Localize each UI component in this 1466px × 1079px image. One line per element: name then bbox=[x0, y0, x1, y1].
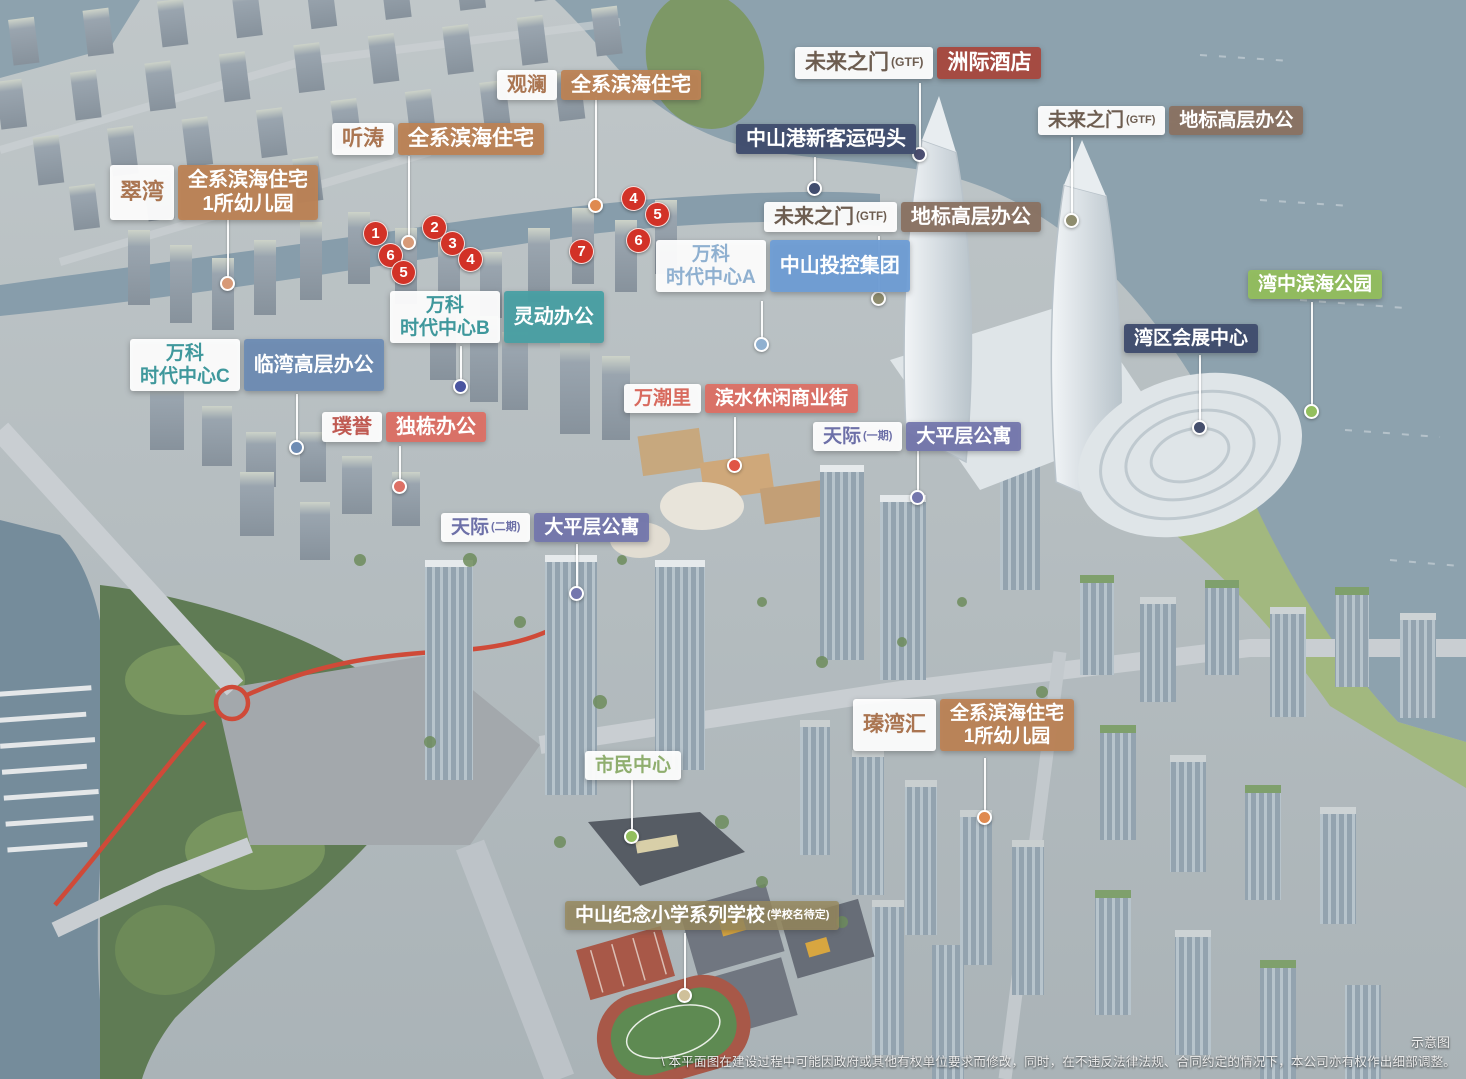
map-marker bbox=[677, 988, 692, 1003]
label-chip-desc: 全系滨海住宅 bbox=[561, 70, 701, 100]
label-chip-desc: 灵动办公 bbox=[504, 291, 604, 343]
leader-line bbox=[734, 417, 736, 460]
leader-line bbox=[684, 933, 686, 990]
map-marker bbox=[871, 291, 886, 306]
label-tianji-phase1: 天际(一期) 大平层公寓 bbox=[813, 422, 1021, 451]
label-chip-name: 未来之门(GTF) bbox=[1038, 106, 1165, 135]
leader-line bbox=[1071, 137, 1073, 215]
label-wanchaoli: 万潮里 滨水休闲商业街 bbox=[624, 384, 858, 413]
disclaimer-text: \ 本平面图在建设过程中可能因政府或其他有权单位要求而修改，同时，在不违反法律法… bbox=[661, 1051, 1456, 1070]
label-chip-name: 听涛 bbox=[332, 123, 394, 155]
map-marker bbox=[392, 479, 407, 494]
label-chip-name: 翠湾 bbox=[110, 165, 174, 220]
schematic-note: 示意图 bbox=[1411, 1032, 1450, 1051]
label-tingtao: 听涛 全系滨海住宅 bbox=[332, 123, 544, 155]
map-marker bbox=[1064, 213, 1079, 228]
label-vanke-center-c: 万科时代中心C 临湾高层办公 bbox=[130, 339, 384, 391]
label-chip-name: 未来之门(GTF) bbox=[795, 47, 933, 79]
label-cuiwan: 翠湾 全系滨海住宅1所幼儿园 bbox=[110, 165, 318, 220]
map-marker bbox=[727, 458, 742, 473]
label-zhenwanhui: 瑧湾汇 全系滨海住宅1所幼儿园 bbox=[853, 699, 1074, 751]
label-chip-name: 天际(二期) bbox=[441, 513, 530, 542]
label-chip-desc: 全系滨海住宅1所幼儿园 bbox=[178, 165, 318, 220]
label-chip-desc: 全系滨海住宅1所幼儿园 bbox=[940, 699, 1074, 751]
leader-line bbox=[984, 758, 986, 812]
leader-line bbox=[917, 451, 919, 492]
label-chip-desc: 全系滨海住宅 bbox=[398, 123, 544, 155]
leader-line bbox=[1199, 355, 1201, 422]
leader-line bbox=[296, 394, 298, 442]
leader-line bbox=[460, 346, 462, 381]
leader-line bbox=[408, 156, 410, 237]
label-chip-desc: 地标高层办公 bbox=[1169, 106, 1303, 135]
label-chip-desc: 洲际酒店 bbox=[937, 47, 1041, 79]
label-tianji-phase2: 天际(二期) 大平层公寓 bbox=[441, 513, 649, 542]
unit-badge: 5 bbox=[645, 202, 670, 227]
label-school: 中山纪念小学系列学校(学校名待定) bbox=[565, 901, 839, 930]
label-guanlan: 观澜 全系滨海住宅 bbox=[497, 70, 701, 100]
label-expo-center: 湾区会展中心 bbox=[1124, 324, 1258, 353]
unit-badge: 7 bbox=[569, 239, 594, 264]
unit-badge: 4 bbox=[621, 186, 646, 211]
label-gtf-mid: 未来之门(GTF) 地标高层办公 bbox=[764, 202, 1041, 232]
label-chip-desc: 大平层公寓 bbox=[906, 422, 1021, 451]
label-gtf-hotel: 未来之门(GTF) 洲际酒店 bbox=[795, 47, 1041, 79]
label-chip-desc: 湾中滨海公园 bbox=[1248, 270, 1382, 299]
label-bay-park: 湾中滨海公园 bbox=[1248, 270, 1382, 299]
leader-line bbox=[761, 301, 763, 339]
leader-line bbox=[399, 446, 401, 481]
leader-line bbox=[576, 544, 578, 588]
map-marker bbox=[289, 440, 304, 455]
label-chip-desc: 中山投控集团 bbox=[770, 240, 910, 292]
label-civic-center: 市民中心 bbox=[585, 751, 681, 780]
label-vanke-center-b: 万科时代中心B 灵动办公 bbox=[390, 291, 604, 343]
masterplan-aerial-image: 1 6 5 2 3 4 7 4 5 6 翠湾 全系滨海住宅1所幼儿园 听涛 全系… bbox=[0, 0, 1466, 1079]
label-chip-desc: 中山纪念小学系列学校(学校名待定) bbox=[565, 901, 839, 930]
leader-line bbox=[1311, 302, 1313, 406]
leader-line bbox=[919, 83, 921, 149]
label-chip-desc: 大平层公寓 bbox=[534, 513, 649, 542]
map-marker bbox=[453, 379, 468, 394]
unit-badge: 4 bbox=[458, 247, 483, 272]
label-chip-name: 观澜 bbox=[497, 70, 557, 100]
unit-badge: 5 bbox=[391, 260, 416, 285]
label-chip-desc: 临湾高层办公 bbox=[244, 339, 384, 391]
label-chip-name: 万科时代中心B bbox=[390, 291, 500, 343]
water-left-marina bbox=[0, 520, 108, 1079]
map-marker bbox=[754, 337, 769, 352]
label-chip-name: 璞誉 bbox=[322, 412, 382, 442]
map-marker bbox=[1192, 420, 1207, 435]
map-marker bbox=[220, 276, 235, 291]
map-marker bbox=[588, 198, 603, 213]
label-port-terminal: 中山港新客运码头 bbox=[736, 124, 916, 154]
map-marker bbox=[1304, 404, 1319, 419]
label-vanke-center-a: 万科时代中心A 中山投控集团 bbox=[656, 240, 910, 292]
unit-badge: 1 bbox=[363, 221, 388, 246]
map-marker bbox=[910, 490, 925, 505]
leader-line bbox=[227, 218, 229, 278]
map-marker bbox=[807, 181, 822, 196]
map-marker bbox=[977, 810, 992, 825]
label-chip-desc: 中山港新客运码头 bbox=[736, 124, 916, 154]
leader-line bbox=[595, 97, 597, 200]
label-chip-desc: 滨水休闲商业街 bbox=[705, 384, 858, 413]
label-chip-desc: 湾区会展中心 bbox=[1124, 324, 1258, 353]
label-chip-name: 万潮里 bbox=[624, 384, 701, 413]
label-chip-name: 万科时代中心C bbox=[130, 339, 240, 391]
leader-line bbox=[631, 780, 633, 831]
label-chip-desc: 独栋办公 bbox=[386, 412, 486, 442]
label-gtf-right: 未来之门(GTF) 地标高层办公 bbox=[1038, 106, 1303, 135]
map-marker bbox=[624, 829, 639, 844]
label-chip-name: 未来之门(GTF) bbox=[764, 202, 897, 232]
label-chip-name: 万科时代中心A bbox=[656, 240, 766, 292]
label-puyu: 璞誉 独栋办公 bbox=[322, 412, 486, 442]
map-marker bbox=[401, 235, 416, 250]
label-chip-desc: 市民中心 bbox=[585, 751, 681, 780]
label-chip-name: 天际(一期) bbox=[813, 422, 902, 451]
unit-badge: 6 bbox=[626, 228, 651, 253]
map-marker bbox=[569, 586, 584, 601]
leader-line bbox=[814, 157, 816, 183]
label-chip-desc: 地标高层办公 bbox=[901, 202, 1041, 232]
label-chip-name: 瑧湾汇 bbox=[853, 699, 936, 751]
